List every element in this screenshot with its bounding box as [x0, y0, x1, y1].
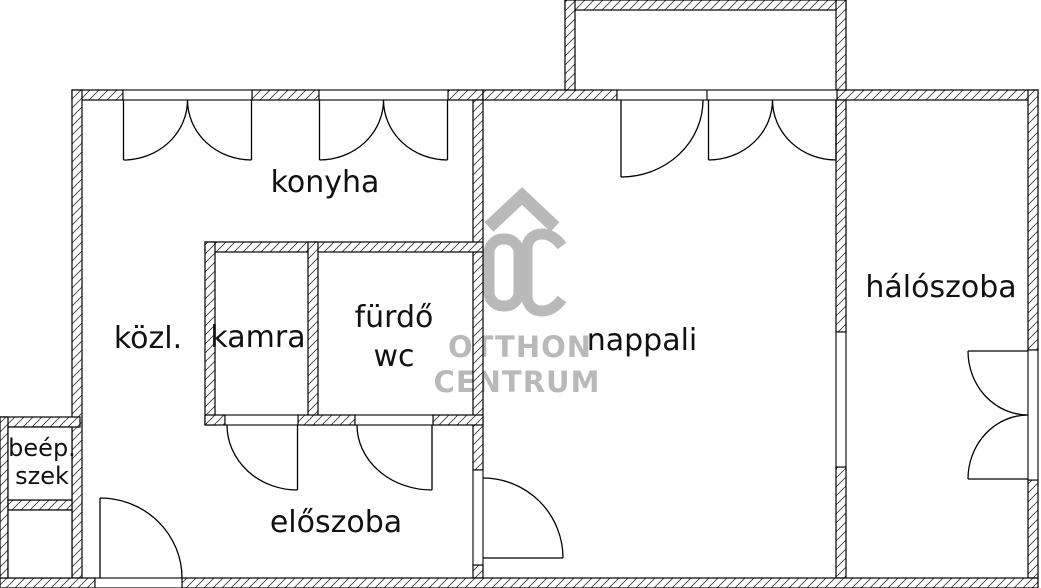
wall-top-4 — [483, 90, 617, 100]
partition-mid — [308, 242, 318, 425]
wall-right-lower — [1028, 480, 1038, 578]
wall-bottom-1 — [0, 578, 95, 588]
bedroom-passage-opening — [836, 332, 846, 467]
room-label-beep-1: beép. — [8, 434, 76, 462]
partition-bottom-3 — [433, 415, 483, 425]
room-label-kamra: kamra — [210, 320, 305, 355]
partition-bottom-1 — [205, 415, 225, 425]
bathroom-door-opening — [355, 415, 433, 425]
balcony-wall-right — [836, 0, 846, 90]
wall-bottom-2 — [182, 578, 1038, 588]
wall-left — [72, 90, 82, 578]
kitchen-window-2-opening — [319, 90, 448, 100]
wall-mid-lower — [473, 565, 483, 578]
watermark-brand-bottom: CENTRUM — [434, 365, 601, 399]
wall-top-5 — [837, 90, 1038, 100]
room-label-nappali: nappali — [587, 323, 698, 358]
balcony-door-opening — [617, 90, 707, 100]
wardrobe-box-bottom — [8, 510, 72, 578]
floorplan-canvas: OTTHON CENTRUM — [0, 0, 1041, 588]
pantry-door-opening — [225, 415, 298, 425]
room-label-haloszoba: hálószoba — [865, 270, 1016, 305]
room-label-kozl: közl. — [114, 321, 182, 356]
wardrobe-wall-top — [0, 417, 80, 427]
balcony-wall-left — [565, 0, 575, 90]
wall-bedroom-upper — [836, 100, 846, 332]
kitchen-window-1-opening — [123, 90, 252, 100]
entry-door-opening — [95, 578, 182, 588]
watermark-brand-top: OTTHON — [448, 330, 592, 364]
balcony-wall-top — [565, 0, 846, 10]
room-label-beep-2: szek — [15, 462, 69, 490]
bedroom-window-opening — [1028, 350, 1038, 480]
wall-right-upper — [1028, 90, 1038, 350]
room-label-konyha: konyha — [271, 165, 380, 200]
room-label-furdo: fürdő — [355, 300, 434, 335]
balcony-window-opening — [707, 90, 837, 100]
livingroom-door-opening — [473, 470, 483, 565]
wardrobe-divider — [8, 500, 72, 510]
room-label-wc: wc — [373, 339, 414, 374]
wall-top-3 — [448, 90, 483, 100]
wall-top-2 — [252, 90, 319, 100]
wardrobe-wall-left — [0, 417, 8, 578]
wall-bedroom-lower — [836, 467, 846, 578]
room-label-eloszoba: előszoba — [270, 505, 402, 540]
floorplan-drawing: OTTHON CENTRUM — [0, 0, 1041, 588]
partition-bottom-2 — [298, 415, 355, 425]
partition-top — [205, 242, 483, 252]
